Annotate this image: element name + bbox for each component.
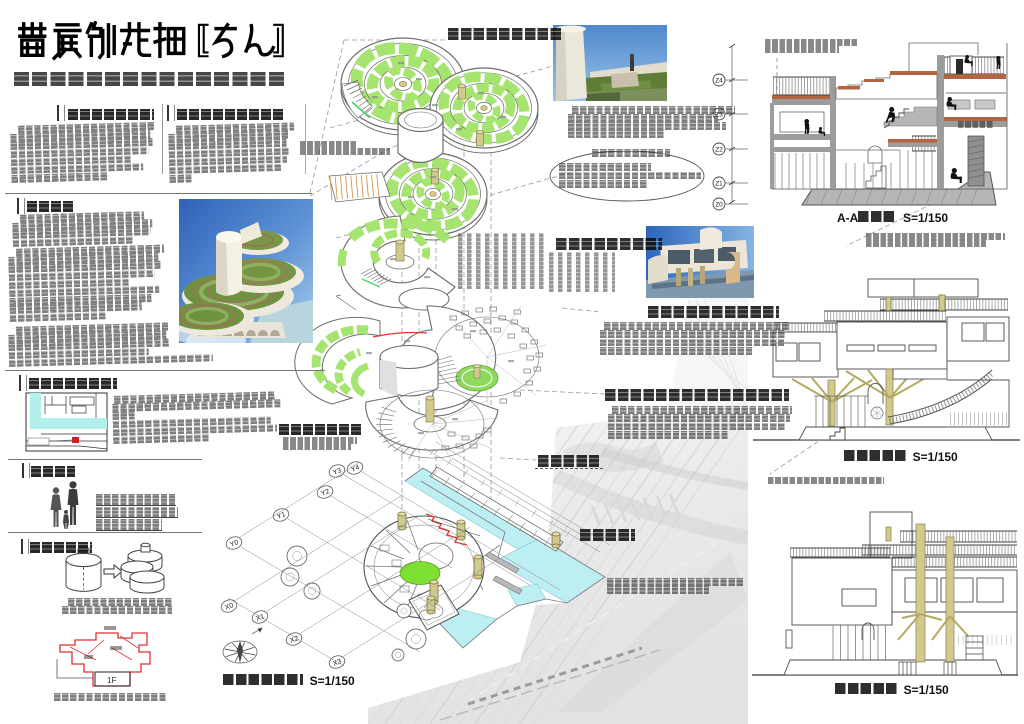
svg-text:1F: 1F	[107, 676, 116, 685]
